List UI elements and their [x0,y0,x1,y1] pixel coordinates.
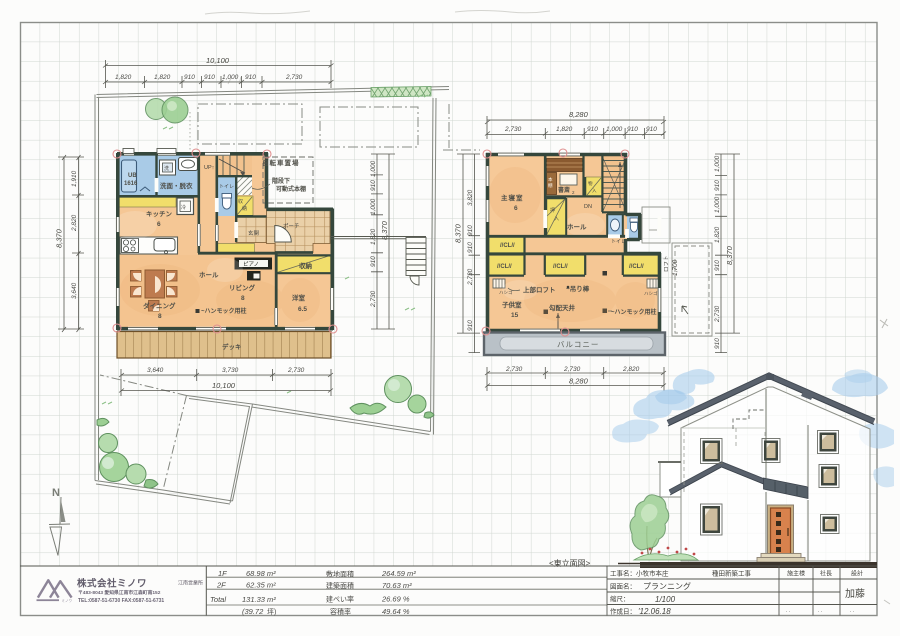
svg-text:264.59 m²: 264.59 m² [381,569,416,578]
svg-text:3,640: 3,640 [147,367,164,374]
svg-text:トイレ: トイレ [611,239,626,245]
svg-text:1616: 1616 [124,181,138,187]
svg-text:ミノワ: ミノワ [62,598,73,603]
svg-text:910: 910 [467,242,474,253]
svg-text:2F: 2F [216,581,226,590]
svg-text:UB: UB [128,173,137,179]
svg-text:江南営業所: 江南営業所 [178,580,203,587]
svg-text:6: 6 [157,221,161,228]
svg-text:バルコニー: バルコニー [557,340,599,349]
svg-text:1,820: 1,820 [115,74,132,81]
svg-text:子供室: 子供室 [502,300,522,309]
svg-text:910: 910 [370,256,377,267]
svg-text:納: 納 [242,205,247,212]
svg-text:2,730: 2,730 [714,305,721,323]
svg-text:入: 入 [554,216,559,222]
svg-text:加藤: 加藤 [845,588,865,600]
svg-text:910: 910 [245,74,256,81]
svg-text:収: 収 [238,198,243,205]
svg-text:. .: . . [818,608,822,614]
svg-text:株式会社ミノワ: 株式会社ミノワ [77,578,147,590]
svg-text:62.35 m²: 62.35 m² [246,581,276,590]
svg-text:書斎: 書斎 [558,186,570,194]
svg-text:勾配天井: 勾配天井 [549,303,576,312]
svg-text:リビング: リビング [229,283,256,292]
svg-text:8,280: 8,280 [569,110,589,119]
svg-text:910: 910 [627,126,638,133]
svg-text:910: 910 [467,320,474,331]
svg-text:押: 押 [550,207,555,214]
svg-text:UP↑: UP↑ [204,165,215,171]
svg-text://CL//: //CL// [500,243,515,249]
svg-text:キッチン: キッチン [146,210,173,218]
svg-text:10,100: 10,100 [206,56,230,65]
svg-text:収納: 収納 [299,261,313,270]
svg-text:デッキ: デッキ [222,342,242,351]
svg-text:物: 物 [588,180,593,187]
svg-text:施主様: 施主様 [787,570,805,578]
svg-text:可動式本棚: 可動式本棚 [276,185,306,193]
svg-text:入: 入 [592,188,597,193]
svg-text:910: 910 [714,260,721,271]
svg-text:2,730: 2,730 [287,367,305,374]
svg-text:N: N [52,487,60,499]
svg-text:1,820: 1,820 [556,126,573,133]
svg-text:本: 本 [548,176,553,183]
svg-text:2,730: 2,730 [504,126,522,133]
svg-text:種田新築工事: 種田新築工事 [712,569,752,578]
svg-text:図面名：: 図面名： [610,582,636,591]
svg-text:2,730: 2,730 [563,366,581,373]
svg-text:1,000: 1,000 [714,196,721,213]
svg-text:棚: 棚 [548,182,553,189]
svg-text:3,820: 3,820 [467,189,474,206]
svg-text:49.64 %: 49.64 % [382,607,410,616]
svg-text:910: 910 [204,74,215,81]
svg-text:8,370: 8,370 [380,220,389,240]
svg-text:〒483-8043 愛知県江南市江森町南152: 〒483-8043 愛知県江南市江森町南152 [78,589,161,596]
svg-text:2,730: 2,730 [285,74,303,81]
svg-text:冷: 冷 [181,204,186,211]
svg-text:1,000: 1,000 [370,198,377,215]
svg-text:10,100: 10,100 [212,381,236,390]
svg-text://CL//: //CL// [629,264,644,270]
svg-text:1,000: 1,000 [714,155,721,172]
svg-text:3,640: 3,640 [71,282,78,299]
svg-text:910: 910 [646,126,657,133]
svg-text:2,730: 2,730 [505,366,523,373]
svg-text:プランニング: プランニング [643,581,691,591]
svg-text:1,820: 1,820 [154,74,171,81]
svg-text:(39.72: (39.72 [242,607,264,616]
svg-text:131.33 m²: 131.33 m² [242,595,276,604]
svg-text:68.98 m²: 68.98 m² [246,569,276,578]
svg-text:DN: DN [584,204,592,210]
svg-text:階段下: 階段下 [272,177,290,185]
svg-text:26.69 %: 26.69 % [381,595,410,604]
svg-text:8: 8 [158,313,162,320]
svg-text:910: 910 [184,74,195,81]
svg-text:910: 910 [370,180,377,191]
svg-text:2,820: 2,820 [622,366,640,373]
svg-text:洗面・脱衣: 洗面・脱衣 [160,181,193,190]
svg-text:ロフト: ロフト [663,255,670,272]
svg-text:~ハンモック用柱: ~ハンモック用柱 [611,308,657,316]
svg-text:ホール: ホール [567,223,587,231]
svg-text:3,730: 3,730 [222,367,239,374]
svg-text:8,370: 8,370 [55,228,64,248]
svg-text:1,000: 1,000 [370,160,377,177]
svg-text:1,000: 1,000 [222,74,239,81]
svg-text:社長: 社長 [820,570,832,578]
svg-text:1,910: 1,910 [71,170,78,187]
svg-text:坪): 坪) [267,608,276,616]
svg-text:容積率: 容積率 [330,607,351,616]
svg-text:2,820: 2,820 [71,214,78,232]
svg-text:建築面積: 建築面積 [326,581,354,590]
svg-text:1,820: 1,820 [714,226,721,243]
svg-text:~吊り棒: ~吊り棒 [566,284,590,293]
svg-text:1,700: 1,700 [672,259,679,276]
svg-text://CL//: //CL// [497,264,512,270]
svg-text:1F: 1F [218,569,227,578]
svg-text:1,000: 1,000 [606,126,623,133]
svg-text:910: 910 [467,225,474,236]
svg-text:自転車置場: 自転車置場 [262,158,300,167]
svg-text:TEL:0587-51-6730 FAX:0587-51-6: TEL:0587-51-6730 FAX:0587-51-6731 [78,598,164,604]
svg-text:ダイニング: ダイニング [143,301,176,310]
svg-text:. .: . . [850,608,854,614]
svg-text:ポーチ: ポーチ [283,223,300,230]
svg-text://CL//: //CL// [553,264,568,270]
svg-text:作成日：: 作成日： [610,607,636,616]
svg-text:Total: Total [210,595,226,604]
svg-text:8,280: 8,280 [569,377,589,386]
svg-text:. .: . . [786,608,790,614]
svg-text:'12.06.18: '12.06.18 [638,607,671,616]
svg-text:2,730: 2,730 [467,268,474,286]
svg-text:工事名：小牧市本庄: 工事名：小牧市本庄 [610,569,669,578]
svg-text:トイレ: トイレ [219,184,234,190]
svg-text:6: 6 [514,205,518,212]
svg-text:主寝室: 主寝室 [501,193,524,202]
svg-text:8: 8 [241,295,245,302]
svg-text:8,370: 8,370 [454,223,463,243]
svg-text:70.63 m²: 70.63 m² [382,581,412,590]
svg-text:洋室: 洋室 [292,293,306,302]
svg-text:設計: 設計 [851,570,863,578]
svg-text:910: 910 [587,126,598,133]
svg-text:ピアノ: ピアノ [243,261,259,268]
svg-text:ホール: ホール [199,271,219,279]
svg-text:1/100: 1/100 [655,595,676,604]
svg-text:~ハンモック用柱: ~ハンモック用柱 [201,307,247,315]
svg-text:15: 15 [511,312,519,319]
svg-text:洗: 洗 [164,165,169,172]
svg-text:縮尺：: 縮尺： [610,594,630,603]
svg-text:上部ロフト: 上部ロフト [523,285,556,294]
svg-text:玄関: 玄関 [248,229,260,237]
svg-text:910: 910 [714,338,721,349]
svg-text:910: 910 [714,180,721,191]
svg-text:6.5: 6.5 [298,306,307,313]
svg-text:建ぺい率: 建ぺい率 [326,595,354,604]
svg-text:2,730: 2,730 [370,290,377,308]
svg-text:8,370: 8,370 [725,245,734,265]
svg-text:ハシゴ: ハシゴ [644,290,658,296]
svg-text:敷地面積: 敷地面積 [326,570,354,579]
